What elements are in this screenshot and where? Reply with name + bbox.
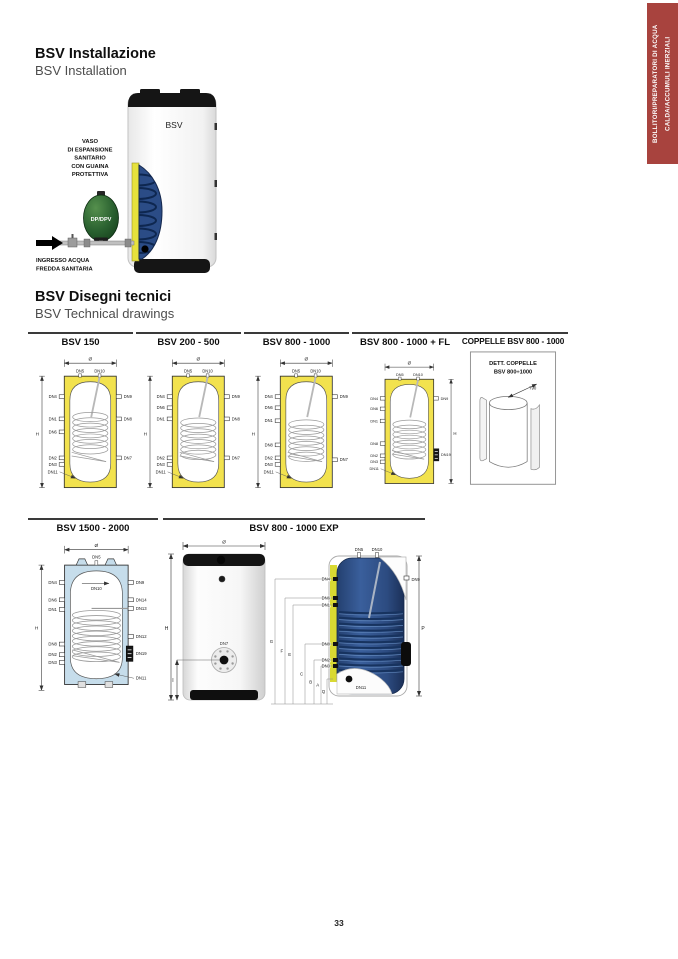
svg-text:Q: Q (322, 689, 326, 694)
svg-text:DN3: DN3 (370, 460, 378, 464)
svg-text:DN11: DN11 (263, 469, 274, 474)
page-number: 33 (0, 918, 678, 928)
svg-text:DN4: DN4 (264, 394, 273, 399)
svg-text:DN12: DN12 (136, 634, 147, 639)
svg-text:H: H (35, 432, 38, 437)
svg-text:DN5: DN5 (396, 373, 404, 377)
svg-text:BSV: BSV (165, 120, 182, 130)
svg-text:B: B (309, 680, 312, 685)
svg-text:F: F (281, 649, 284, 654)
svg-text:DN10: DN10 (94, 368, 105, 373)
diagram-bsv-800-1000-fl-drawing: ØDN5DN10DN4DN6DN1DN8DN2DN3DN11DN9DN19H (352, 352, 458, 496)
svg-text:DN11: DN11 (369, 467, 378, 471)
svg-text:Ø: Ø (304, 356, 308, 361)
tank-diagram: ØDN5DN10DN4DN6DN1DN8DN2DN3DN11DN9DN7H (245, 352, 349, 496)
category-tab-line1: BOLLITORI/PREPARATORI DI ACQUA (650, 6, 662, 161)
installation-figure: BSVVASODI ESPANSIONESANITARIOCON GUAINAP… (28, 85, 258, 285)
installation-diagram: BSVVASODI ESPANSIONESANITARIOCON GUAINAP… (28, 85, 258, 285)
svg-text:DN7: DN7 (123, 455, 132, 460)
drawings-row-2: BSV 1500 - 2000ØDN5DN10DN4DN6DN1DN8DN2DN… (0, 518, 678, 718)
tank-diagram: ØDN5DN10DN4DN1DN6DN2DN3DN11DN9DN8DN7H (29, 352, 133, 496)
diagram-bsv-800-1000-exp-drawing: ØHDN7IDN11DN5DN10DN9DN4DN6DN1DN8DN2DN3GF… (163, 538, 425, 710)
diagram-bsv-200-500-title: BSV 200 - 500 (136, 332, 241, 348)
svg-text:Ø: Ø (88, 356, 92, 361)
svg-text:DN9: DN9 (441, 397, 449, 401)
svg-text:DN14: DN14 (136, 597, 147, 602)
svg-text:DN10: DN10 (91, 586, 102, 591)
svg-text:DN4: DN4 (156, 394, 165, 399)
diagram-bsv-800-1000-exp-title: BSV 800 - 1000 EXP (163, 518, 425, 534)
svg-text:DN10: DN10 (372, 547, 383, 552)
svg-text:DN2: DN2 (48, 455, 57, 460)
svg-text:DN19: DN19 (441, 453, 451, 457)
tank-diagram: ØDN5DN10DN4DN6DN1DN2DN3DN11DN9DN8DN7H (137, 352, 241, 496)
svg-text:DN10: DN10 (310, 368, 321, 373)
svg-text:DN4: DN4 (370, 397, 379, 401)
diagram-bsv-1500-2000-drawing: ØDN5DN10DN4DN6DN1DN8DN2DN3DN9DN14DN13DN1… (28, 538, 158, 702)
diagram-bsv-800-1000-fl-title: BSV 800 - 1000 + FL (352, 332, 458, 348)
flow-arrow-icon (36, 236, 63, 250)
svg-text:DETT. COPPELLE: DETT. COPPELLE (489, 361, 537, 367)
svg-text:DN6: DN6 (264, 405, 273, 410)
coppelle-diagram: DETT. COPPELLEBSV 800÷1000790 (461, 350, 565, 490)
diagram-bsv-200-500-drawing: ØDN5DN10DN4DN6DN1DN2DN3DN11DN9DN8DN7H (136, 352, 241, 496)
technical-title-en: BSV Technical drawings (35, 306, 174, 321)
diagram-bsv-1500-2000-title: BSV 1500 - 2000 (28, 518, 158, 534)
svg-text:DN13: DN13 (136, 606, 147, 611)
svg-text:E: E (288, 652, 291, 657)
svg-text:DN11: DN11 (136, 676, 147, 681)
inlet-caption: INGRESSO ACQUAFREDDA SANITARIA (36, 258, 93, 272)
svg-text:DN5: DN5 (291, 368, 300, 373)
svg-text:DN5: DN5 (92, 554, 101, 559)
svg-text:H: H (251, 432, 254, 437)
svg-text:DN4: DN4 (48, 580, 57, 585)
diagram-bsv-150-title: BSV 150 (28, 332, 133, 348)
svg-text:DN8: DN8 (48, 642, 57, 647)
svg-text:I: I (172, 678, 173, 684)
svg-text:P: P (421, 626, 425, 632)
exp-diagram: ØHDN7IDN11DN5DN10DN9DN4DN6DN1DN8DN2DN3GF… (163, 538, 425, 710)
tank-1500-2000-diagram: ØDN5DN10DN4DN6DN1DN8DN2DN3DN9DN14DN13DN1… (28, 538, 158, 702)
svg-text:DN2: DN2 (370, 454, 378, 458)
diagram-bsv-200-500: BSV 200 - 500ØDN5DN10DN4DN6DN1DN2DN3DN11… (136, 332, 241, 496)
svg-text:DN1: DN1 (370, 419, 378, 423)
installation-title-en: BSV Installation (35, 63, 127, 78)
svg-text:DN7: DN7 (220, 641, 229, 646)
diagram-coppelle-bsv-800-1000-title: COPPELLE BSV 800 - 1000 (458, 332, 568, 346)
svg-text:790: 790 (529, 386, 537, 391)
tank-diagram: ØDN5DN10DN4DN6DN1DN8DN2DN3DN11DN9DN19H (352, 352, 458, 496)
svg-text:DN9: DN9 (231, 394, 240, 399)
svg-text:DN9: DN9 (123, 394, 132, 399)
svg-text:DN6: DN6 (370, 407, 378, 411)
svg-text:G: G (270, 639, 274, 644)
svg-text:H: H (35, 626, 39, 632)
svg-text:Ø: Ø (95, 543, 99, 549)
category-tab-line2: CALDA/ACCUMULI INERZIALI (662, 6, 674, 161)
diagram-bsv-150-drawing: ØDN5DN10DN4DN1DN6DN2DN3DN11DN9DN8DN7H (28, 352, 133, 496)
svg-text:C: C (300, 672, 303, 677)
installation-title-it: BSV Installazione (35, 46, 156, 62)
svg-text:DN2: DN2 (48, 652, 57, 657)
svg-text:DN4: DN4 (48, 394, 57, 399)
diagram-coppelle-bsv-800-1000-drawing: DETT. COPPELLEBSV 800÷1000790 (458, 350, 568, 490)
svg-text:Ø: Ø (196, 356, 200, 361)
svg-text:DN7: DN7 (339, 457, 348, 462)
svg-text:DN5: DN5 (183, 368, 192, 373)
svg-text:DN6: DN6 (156, 405, 165, 410)
svg-text:DN6: DN6 (48, 429, 57, 434)
category-side-tab: BOLLITORI/PREPARATORI DI ACQUA CALDA/ACC… (647, 3, 678, 164)
svg-text:A: A (316, 683, 319, 688)
catalog-page: BOLLITORI/PREPARATORI DI ACQUA CALDA/ACC… (0, 0, 678, 959)
diagram-bsv-800-1000-exp: BSV 800 - 1000 EXP ØHDN7IDN11DN5DN10DN9D… (163, 518, 425, 710)
drawings-row-1: BSV 150ØDN5DN10DN4DN1DN6DN2DN3DN11DN9DN8… (0, 332, 678, 518)
svg-text:DN1: DN1 (264, 418, 273, 423)
diagram-bsv-800-1000: BSV 800 - 1000ØDN5DN10DN4DN6DN1DN8DN2DN3… (244, 332, 349, 496)
svg-text:DN6: DN6 (48, 597, 57, 602)
svg-text:BSV 800÷1000: BSV 800÷1000 (494, 370, 532, 376)
diagram-bsv-150: BSV 150ØDN5DN10DN4DN1DN6DN2DN3DN11DN9DN8… (28, 332, 133, 496)
diagram-bsv-1500-2000: BSV 1500 - 2000ØDN5DN10DN4DN6DN1DN8DN2DN… (28, 518, 158, 702)
svg-text:DN11: DN11 (47, 469, 58, 474)
svg-text:DN19: DN19 (136, 651, 147, 656)
svg-text:DN7: DN7 (231, 455, 240, 460)
diagram-coppelle-bsv-800-1000: COPPELLE BSV 800 - 1000DETT. COPPELLEBSV… (458, 332, 568, 490)
svg-text:H: H (165, 626, 169, 632)
svg-text:DN1: DN1 (48, 416, 57, 421)
svg-text:DN2: DN2 (264, 455, 273, 460)
diagram-bsv-800-1000-fl: BSV 800 - 1000 + FLØDN5DN10DN4DN6DN1DN8D… (352, 332, 458, 496)
svg-text:DN8: DN8 (264, 442, 273, 447)
svg-text:DN11: DN11 (356, 685, 367, 690)
svg-text:DN11: DN11 (155, 469, 166, 474)
svg-text:DN3: DN3 (264, 462, 273, 467)
svg-text:DN9: DN9 (136, 580, 145, 585)
svg-text:DN5: DN5 (75, 368, 84, 373)
svg-text:DN3: DN3 (156, 462, 165, 467)
svg-text:DN3: DN3 (48, 462, 57, 467)
svg-text:Ø: Ø (408, 360, 412, 365)
svg-text:DN10: DN10 (202, 368, 213, 373)
diagram-bsv-800-1000-title: BSV 800 - 1000 (244, 332, 349, 348)
technical-title-it: BSV Disegni tecnici (35, 289, 171, 305)
svg-text:DN8: DN8 (123, 416, 132, 421)
svg-text:DN5: DN5 (355, 547, 364, 552)
svg-text:H: H (143, 432, 146, 437)
svg-text:DN1: DN1 (48, 607, 57, 612)
svg-text:DN1: DN1 (156, 416, 165, 421)
svg-text:H: H (453, 431, 456, 436)
svg-text:DN10: DN10 (413, 373, 423, 377)
diagram-bsv-800-1000-drawing: ØDN5DN10DN4DN6DN1DN8DN2DN3DN11DN9DN7H (244, 352, 349, 496)
svg-text:DN2: DN2 (156, 455, 165, 460)
expansion-caption: VASODI ESPANSIONESANITARIOCON GUAINAPROT… (68, 139, 113, 178)
svg-text:DP/DPV: DP/DPV (91, 217, 112, 223)
svg-text:DN8: DN8 (370, 442, 378, 446)
svg-text:DN9: DN9 (339, 394, 348, 399)
svg-text:Ø: Ø (222, 540, 226, 545)
svg-text:DN8: DN8 (231, 416, 240, 421)
svg-text:DN3: DN3 (48, 660, 57, 665)
